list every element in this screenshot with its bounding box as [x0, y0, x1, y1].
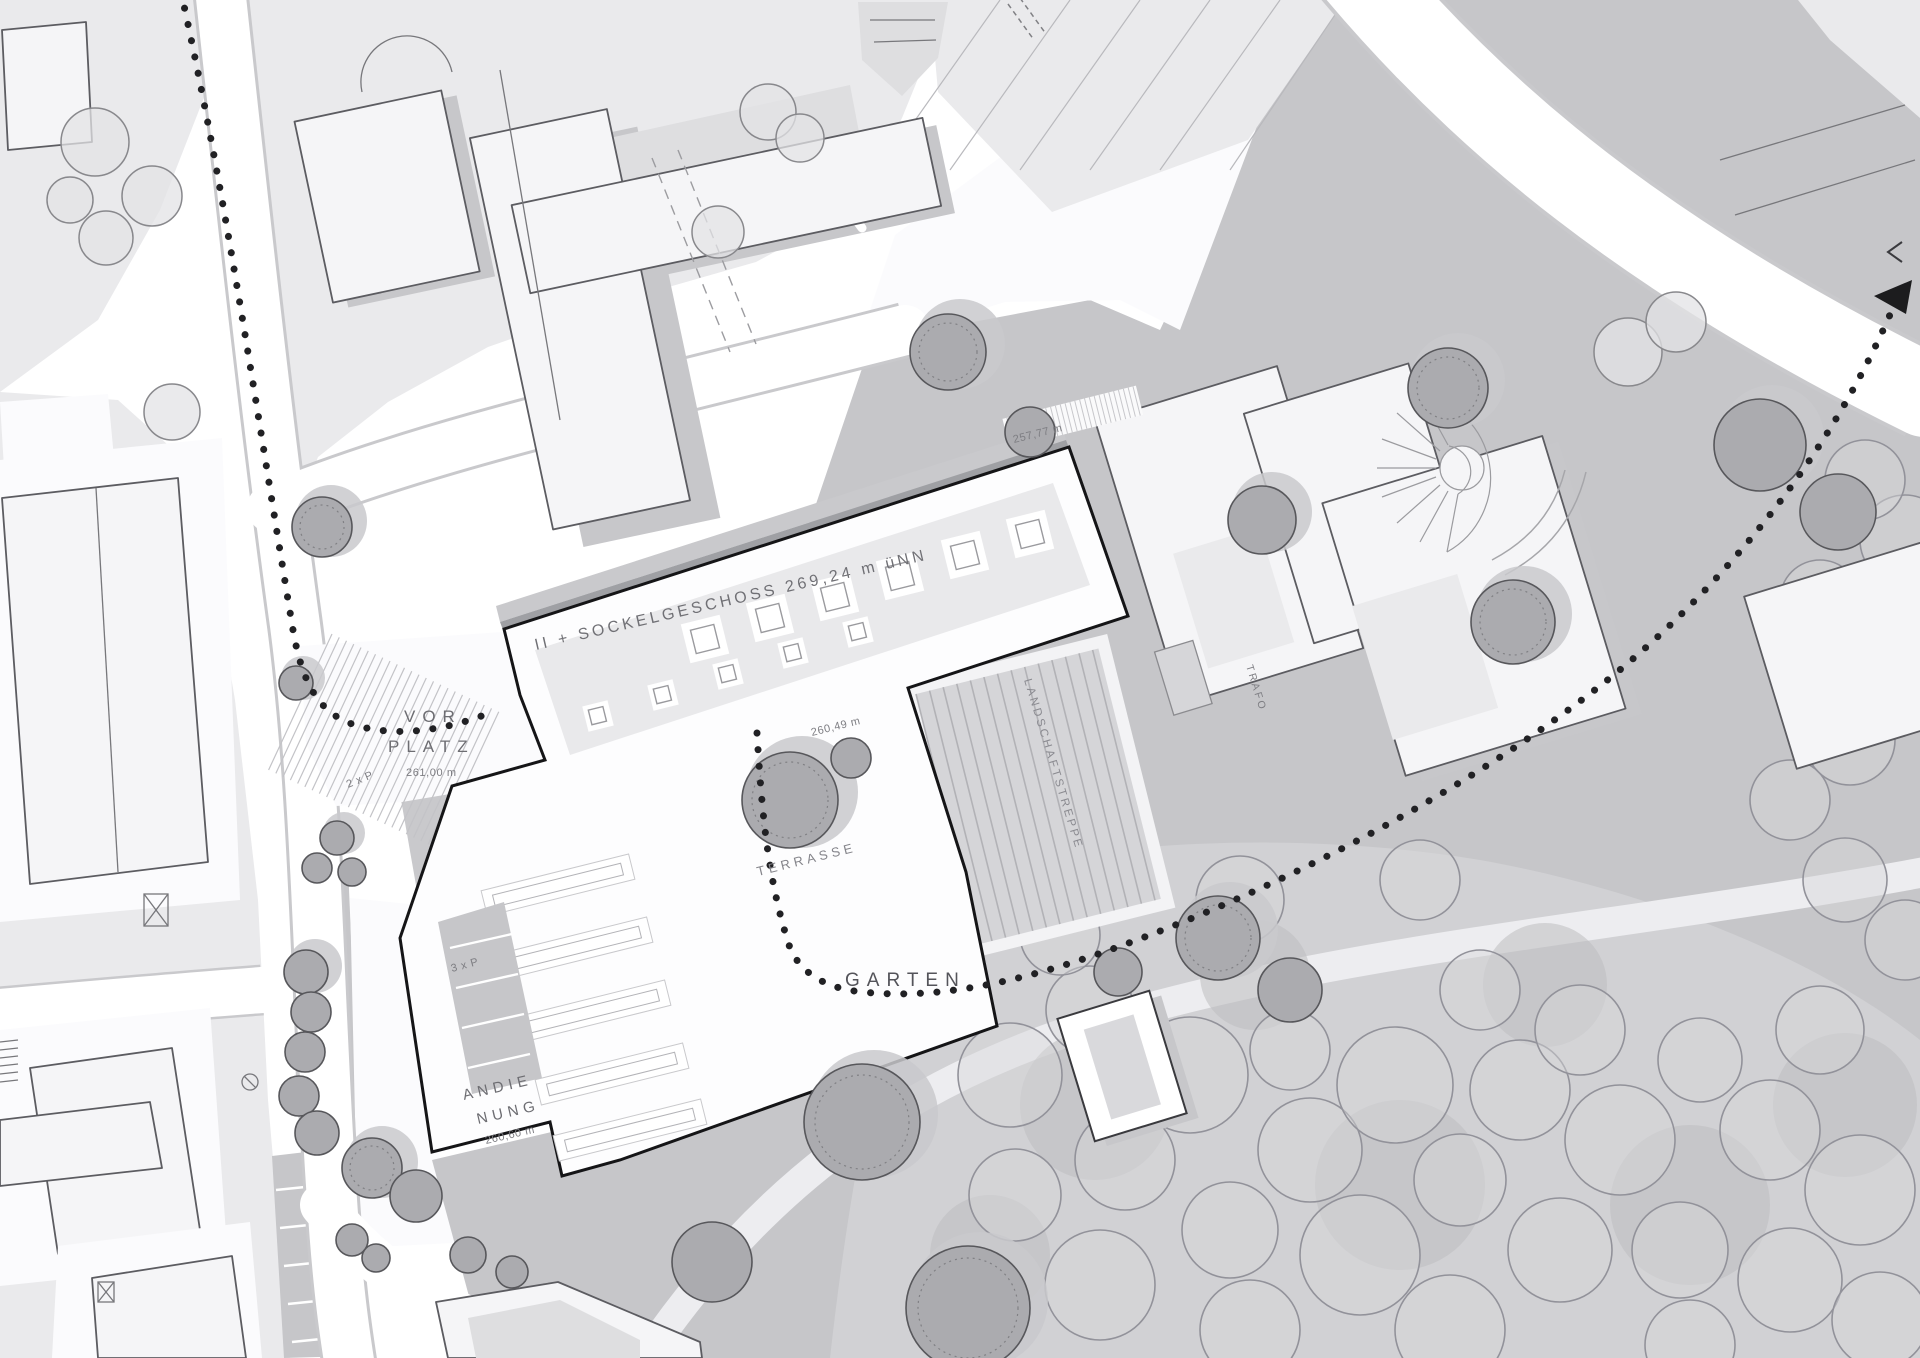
- label-vorplatz-2: PLATZ: [388, 737, 475, 756]
- site-plan-svg: II + SOCKELGESCHOSS 269,24 m üNN 257,77 …: [0, 0, 1920, 1358]
- buildings-west: [0, 394, 262, 1358]
- label-garten: GARTEN: [845, 970, 966, 991]
- label-vorplatz-level: 261,00 m: [406, 767, 457, 779]
- label-vorplatz-1: VOR: [404, 707, 462, 726]
- site-plan: II + SOCKELGESCHOSS 269,24 m üNN 257,77 …: [0, 0, 1920, 1358]
- street-southwest: [0, 990, 262, 1012]
